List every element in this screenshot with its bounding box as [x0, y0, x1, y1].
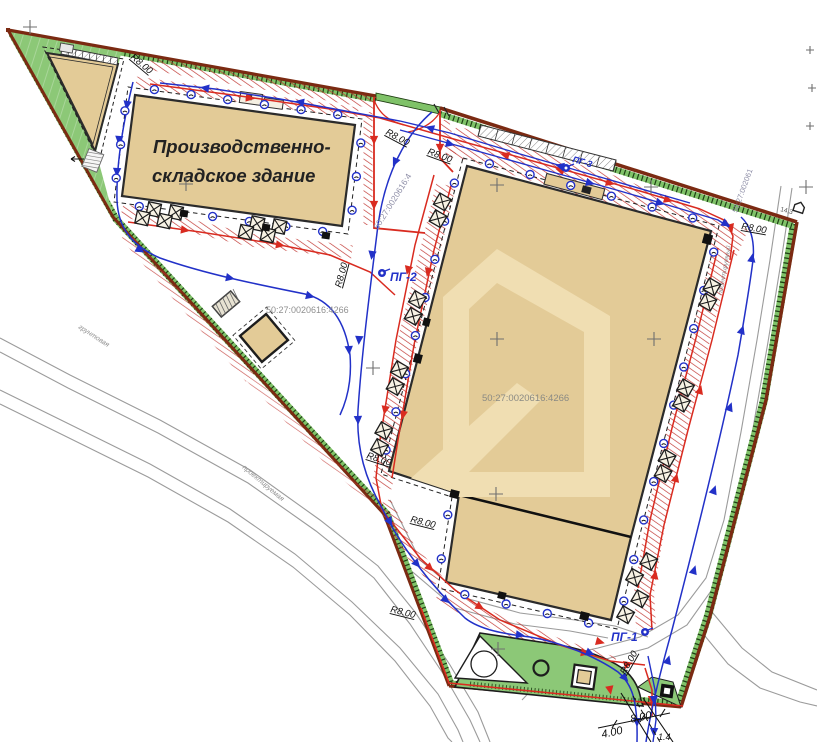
svg-text:складское здание: складское здание: [152, 165, 315, 186]
svg-text:50:27:0020616:4266: 50:27:0020616:4266: [266, 305, 349, 315]
svg-text:Производственно-: Производственно-: [153, 136, 331, 157]
svg-text:1.4: 1.4: [658, 732, 671, 742]
svg-text:ПГ-1: ПГ-1: [611, 630, 638, 644]
svg-text:50:27:0020616:4266: 50:27:0020616:4266: [482, 393, 569, 404]
svg-text:ПГ-2: ПГ-2: [390, 270, 417, 284]
